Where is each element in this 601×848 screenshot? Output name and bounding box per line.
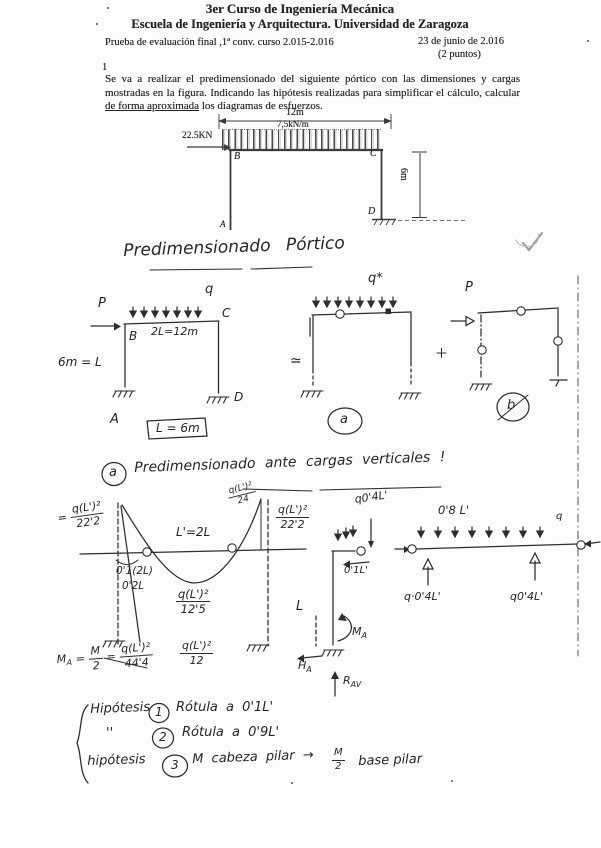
- section-a-tag: a: [109, 466, 117, 480]
- sketch1-node-a: A: [110, 413, 119, 427]
- md-fixed-end-fraction: q(L')² 12: [180, 640, 213, 666]
- problem-text-before: Se va a realizar el predimensionado del …: [105, 73, 520, 99]
- sketch1-boxed-length: L = 6m: [156, 422, 200, 435]
- sketch2-frame-linework: [301, 297, 446, 434]
- sketch3-tag-b: b: [507, 399, 515, 413]
- problem-text-underlined: de forma aproximada: [105, 100, 199, 112]
- sketch1-node-b: B: [129, 330, 137, 343]
- fbd-vertical-reaction-label: RAV: [343, 675, 361, 689]
- hypothesis-3-m-half-wrap: M 2: [332, 748, 345, 772]
- md-right-fraction-wrap: q(L')² 22'2: [276, 504, 309, 530]
- hypothesis-2-text: Rótula a 0'9L': [182, 726, 279, 740]
- handwritten-title: Predimensionado Pórtico: [123, 235, 345, 261]
- md-ma-fraction: q(L')² 44'4: [119, 641, 154, 669]
- sketch1-load-p-label: P: [98, 297, 106, 311]
- md-left-eq: =: [57, 512, 68, 525]
- scan-specks: [96, 7, 589, 784]
- md-midspan-fraction-wrap: q(L')² 12'5: [176, 588, 210, 615]
- md-hinge-offset-label: 0'1(2L): [116, 566, 153, 577]
- section-a-title: Predimensionado ante cargas verticales !: [134, 450, 446, 476]
- md-midspan-fraction: q(L')² 12'5: [176, 588, 210, 615]
- md-m-half-fraction: M 2: [88, 645, 103, 672]
- md-right-fraction: q(L')² 22'2: [276, 504, 309, 530]
- hypothesis-3-text-b: base pilar: [358, 753, 422, 769]
- figure-node-c: C: [370, 149, 377, 160]
- hypothesis-1-text: Rótula a 0'1L': [176, 701, 273, 715]
- fbd-corner-load-label: q0'4L': [354, 489, 388, 505]
- hypothesis-1-word: Hipótesis: [90, 701, 150, 717]
- fbd-stub-length-label: 0'1L': [344, 566, 368, 577]
- figure-node-d: D: [368, 207, 375, 218]
- problem-number: 1: [102, 62, 107, 73]
- figure-node-a: A: [220, 220, 226, 229]
- fbd-right-reaction-label: q0'4L': [510, 591, 543, 603]
- sketch1-span-label: 2L=12m: [151, 326, 198, 338]
- hypothesis-2-ditto: '': [106, 727, 113, 741]
- check-mark-icon: [516, 233, 542, 250]
- problem-statement: Se va a realizar el predimensionado del …: [105, 73, 520, 114]
- fbd-horizontal-reaction-label: HA: [298, 660, 312, 674]
- md-peak-fraction: q(L')² 24: [226, 481, 258, 509]
- hypothesis-3-word: hipótesis: [87, 753, 146, 769]
- hypothesis-3-m-half-fraction: M 2: [332, 748, 345, 772]
- figure-height-label: 6m: [398, 168, 409, 181]
- sketch1-node-d: D: [234, 391, 243, 404]
- handwritten-linework: [77, 7, 600, 784]
- scanned-exam-page: 3er Curso de Ingeniería Mecánica Escuela…: [0, 0, 601, 848]
- hypothesis-1-number: 1: [155, 706, 163, 719]
- fbd-column-height-label: L: [296, 600, 303, 614]
- md-peak-fraction-wrap: q(L')² 24: [226, 481, 258, 509]
- md-base-moment-equation: MA = M 2 = q(L')² 44'4: [56, 641, 154, 674]
- sketch2-tag-a: a: [340, 413, 348, 427]
- md-left-fraction: q(L')² 22'2: [69, 500, 105, 530]
- hypothesis-3-text-a: M cabeza pilar →: [192, 749, 314, 767]
- hypothesis-2-number: 2: [159, 731, 167, 744]
- md-span-label: L'=2L: [176, 526, 210, 539]
- md-fixed-end-fraction-wrap: q(L')² 12: [180, 640, 213, 666]
- header-course-title: 3er Curso de Ingeniería Mecánica: [60, 2, 540, 16]
- header-exam-label: Prueba de evaluación final ,1ª conv. cur…: [105, 37, 334, 48]
- md-hinge-offset-value: 0'2L: [122, 581, 144, 592]
- header-date: 23 de junio de 2.016: [418, 36, 504, 47]
- problem-text-after: los diagramas de esfuerzos.: [199, 100, 323, 112]
- md-left-corner-moment: = q(L')² 22'2: [56, 500, 106, 532]
- approx-equal-sign: ≃: [290, 354, 302, 369]
- sketch1-height-label: 6m = L: [58, 356, 102, 369]
- md-ma-symbol: MA: [56, 653, 72, 668]
- distributed-load-comb: [222, 129, 381, 150]
- figure-node-b: B: [234, 152, 240, 163]
- sketch3-load-p-label: P: [465, 281, 473, 295]
- fbd-q-label: q: [556, 512, 562, 523]
- beam-fbd-linework: [332, 519, 600, 645]
- hypothesis-3-number: 3: [171, 759, 179, 772]
- figure-span-label: 12m: [286, 108, 304, 119]
- figure-horizontal-load-label: 22.5KN: [182, 132, 212, 142]
- sketch1-load-q-label: q: [205, 283, 213, 297]
- sketch1-node-c: C: [222, 307, 230, 320]
- sketch2-load-q-label: q*: [368, 272, 383, 286]
- fbd-base-moment-label: MA: [352, 626, 367, 640]
- fbd-span-label: 0'8 L': [438, 504, 469, 516]
- header-points: (2 puntos): [438, 49, 481, 60]
- fbd-left-reaction-label: q·0'4L': [404, 591, 441, 603]
- header-school-title: Escuela de Ingeniería y Arquitectura. Un…: [40, 18, 560, 31]
